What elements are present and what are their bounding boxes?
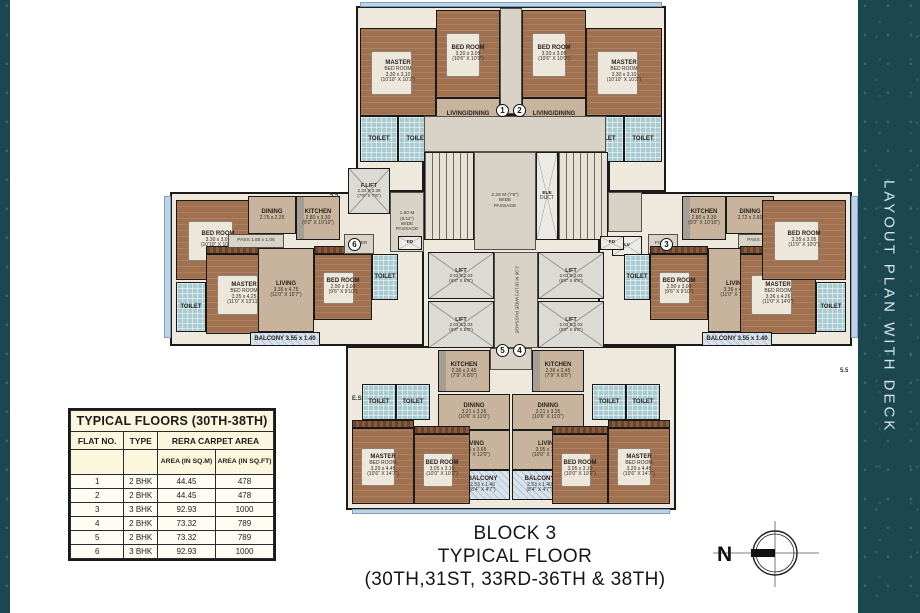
room-label: (10'6" X 14'7")	[367, 472, 399, 478]
room-deck-top	[360, 2, 662, 7]
layout-plan-page: LAYOUT PLAN WITH DECK BED ROOM3.20 x 3.0…	[0, 0, 920, 613]
room-lift-1: LIFT2.03 X 2.03(6'8" X 6'8")	[428, 252, 494, 299]
table-cell: 478	[216, 489, 274, 503]
table-cell: 2 BHK	[124, 489, 158, 503]
plan-note: 5.5	[330, 193, 338, 199]
room-stair-left	[424, 152, 474, 240]
flat-number-marker-2: 2	[513, 104, 526, 117]
room-label: (10'6" X 14'7")	[623, 472, 655, 478]
flat-number-marker-5: 5	[496, 344, 509, 357]
room-label: (10'10" X 10'2")	[381, 78, 415, 84]
left-border-strip	[0, 0, 10, 613]
room-f3-wardrobe-2	[650, 246, 708, 254]
table-cell: 3	[71, 503, 124, 517]
room-label: TOILET	[368, 399, 389, 406]
table-cell: 2 BHK	[124, 517, 158, 531]
room-label: BALCONY 3.55 x 1.40	[254, 336, 315, 343]
room-label: (10'6" X 10'0")	[452, 57, 484, 63]
room-label: PASS 1.65 x 1.05	[237, 238, 275, 243]
room-label: (10'0" X 10'2")	[426, 472, 458, 478]
room-f6-kitchen: KITCHEN2.80 x 3.30(9'2" X 10'10")	[296, 196, 340, 240]
room-f6-fd: FD	[398, 236, 422, 250]
block-title: BLOCK 3 TYPICAL FLOOR (30TH,31ST, 33RD-3…	[330, 522, 700, 591]
room-label: (11'0" X 13'11")	[227, 300, 261, 306]
room-f4-toilet-1: TOILET	[626, 384, 660, 420]
table-row: 33 BHK92.931000	[71, 503, 274, 517]
room-label: LV	[624, 243, 630, 248]
room-label: (6'8" X 6'8")	[559, 328, 582, 333]
north-compass: N	[705, 515, 825, 600]
room-label: (11'0" X 10'0")	[788, 243, 819, 249]
room-label: PASSAGE	[494, 204, 517, 209]
plan-note: E.S	[352, 396, 362, 402]
room-label: 2.08 M (6'10") WIDE PASSAGE	[513, 266, 518, 334]
sidebar-vertical-title: LAYOUT PLAN WITH DECK	[881, 180, 898, 433]
table-cell: 1000	[216, 503, 274, 517]
room-label: FD	[609, 240, 615, 245]
table-cell: 6	[71, 545, 124, 559]
room-f4-dining: DINING3.21 x 3.35(10'6" X 11'0")	[512, 394, 584, 430]
table-cell: 73.32	[158, 517, 216, 531]
table-cell: 44.45	[158, 489, 216, 503]
room-f1-toilet-1: TOILET	[360, 116, 398, 162]
room-f3-bedroom-1: BED ROOM3.35 x 3.05(11'0" X 10'0")	[762, 200, 846, 280]
room-f6-dining: DINING2.75 x 2.25	[248, 196, 296, 234]
room-f3-bedroom-2: BED ROOM2.90 x 3.00(9'6" X 9'10")	[650, 254, 708, 320]
room-f6-bedroom-2: BED ROOM2.90 x 3.00(9'6" X 9'10")	[314, 254, 372, 320]
table-cell: 5	[71, 531, 124, 545]
room-f5-toilet-2: TOILET	[396, 384, 430, 420]
room-f4-master-bedroom: MASTERBED ROOM3.20 x 4.45(10'6" X 14'7")	[608, 428, 670, 504]
table-cell: 478	[216, 475, 274, 489]
room-f5-dining: DINING3.21 x 3.35(10'6" X 11'0")	[438, 394, 510, 430]
room-label: (7'8" X 7'8")	[357, 194, 380, 199]
block-title-line2: TYPICAL FLOOR	[330, 545, 700, 568]
room-label: PASSAGE	[396, 227, 419, 232]
room-stair-right	[558, 152, 608, 240]
room-label: TOILET	[374, 274, 395, 281]
room-label: DUCT	[540, 196, 554, 202]
table-cell: 1	[71, 475, 124, 489]
room-label: TOILET	[626, 274, 647, 281]
table-cell: 1000	[216, 545, 274, 559]
room-label: 2.72 x 2.60	[738, 216, 763, 222]
col-flat-no: FLAT NO.	[71, 432, 124, 450]
room-core-passage: 2.28 M (7'6")WIDEPASSAGE	[474, 152, 536, 250]
room-label: (9'2" X 10'10")	[688, 221, 720, 227]
room-label: TOILET	[632, 136, 653, 143]
block-title-line1: BLOCK 3	[330, 522, 700, 545]
compass-north-bar	[751, 549, 775, 557]
room-ele-duct: ELEDUCT	[536, 152, 558, 240]
room-f3-kitchen: KITCHEN2.80 x 3.30(9'2" X 10'10")	[682, 196, 726, 240]
room-f5-master-bedroom: MASTERBED ROOM3.20 x 4.45(10'6" X 14'7")	[352, 428, 414, 504]
room-f5-toilet-1: TOILET	[362, 384, 396, 420]
typical-floors-table: TYPICAL FLOORS (30TH-38TH)FLAT NO.TYPERE…	[68, 408, 276, 561]
room-f1-bedroom: BED ROOM3.20 x 3.05(10'6" X 10'0")	[436, 10, 500, 98]
room-f6-toilet-2: TOILET	[372, 254, 398, 300]
room-label: (11'0" X 15'7")	[270, 293, 301, 299]
room-f2-toilet-2: TOILET	[624, 116, 662, 162]
room-f4-bedroom: BED ROOM3.05 x 3.10(10'0" X 10'2")	[552, 434, 608, 504]
table-cell: 3 BHK	[124, 503, 158, 517]
room-label: (11'0" X 14'0")	[762, 300, 793, 306]
room-f5-kitchen: KITCHEN2.36 x 2.45(7'9" X 8'0")	[438, 350, 490, 392]
room-lift-4: LIFT2.03 X 2.03(6'8" X 6'8")	[538, 301, 604, 348]
table-row: 12 BHK44.45478	[71, 475, 274, 489]
room-f3-balcony: BALCONY 3.55 x 1.40	[702, 332, 772, 346]
room-label: TOILET	[820, 304, 841, 311]
table-cell: 2	[71, 489, 124, 503]
room-f3-toilet-1: TOILET	[816, 282, 846, 332]
table-cell: 73.32	[158, 531, 216, 545]
sub-blank-1	[71, 450, 124, 475]
room-f4-wardrobe-1	[608, 420, 670, 428]
table-cell: 44.45	[158, 475, 216, 489]
sub-area-sqm: AREA (IN SQ.M)	[158, 450, 216, 475]
room-label: (8'4" X 4'7")	[526, 488, 552, 494]
room-f6-balcony: BALCONY 3.55 x 1.40	[250, 332, 320, 346]
room-f4-toilet-2: TOILET	[592, 384, 626, 420]
col-type: TYPE	[124, 432, 158, 450]
table-cell: 4	[71, 517, 124, 531]
room-label: (10'6" X 10'0")	[538, 57, 570, 63]
table-row: 42 BHK73.32789	[71, 517, 274, 531]
room-lift-2: LIFT2.03 X 2.03(6'8" X 6'8")	[428, 301, 494, 348]
room-label: (6'8" X 6'8")	[449, 328, 472, 333]
room-label: TOILET	[180, 304, 201, 311]
room-deck-right	[851, 196, 858, 338]
room-label: (6'8" X 6'8")	[559, 279, 582, 284]
room-lift-3: LIFT2.03 X 2.03(6'8" X 6'8")	[538, 252, 604, 299]
table-row: 52 BHK73.32789	[71, 531, 274, 545]
room-label: TOILET	[598, 399, 619, 406]
room-f2-bedroom: BED ROOM3.20 x 3.05(10'6" X 10'0")	[522, 10, 586, 98]
table-cell: 789	[216, 531, 274, 545]
room-deck-bottom	[352, 509, 670, 514]
room-f5-wardrobe-1	[352, 420, 414, 428]
flat-number-marker-4: 4	[513, 344, 526, 357]
room-label: 2.75 x 2.25	[260, 216, 285, 222]
room-lift-lobby: 2.08 M (6'10") WIDE PASSAGE	[494, 252, 538, 348]
room-hall-right	[608, 192, 642, 232]
room-label: (8'4" X 4'7")	[469, 488, 495, 494]
sub-blank-2	[124, 450, 158, 475]
room-label: TOILET	[368, 136, 389, 143]
table-cell: 2 BHK	[124, 531, 158, 545]
room-f4-kitchen: KITCHEN2.36 x 2.45(7'9" X 8'0")	[532, 350, 584, 392]
table-row: 22 BHK44.45478	[71, 489, 274, 503]
flat-number-marker-3: 3	[660, 238, 673, 251]
room-f2-master-bedroom: MASTERBED ROOM3.30 x 3.10(10'10" X 10'2"…	[586, 28, 662, 116]
room-label: (9'6" X 9'10")	[665, 290, 694, 296]
room-label: (9'6" X 9'10")	[329, 290, 358, 296]
room-top-corridor	[500, 8, 522, 114]
table-cell: 92.93	[158, 545, 216, 559]
room-label: (7'9" X 8'0")	[451, 374, 477, 380]
room-label: TOILET	[402, 399, 423, 406]
room-label: (7'9" X 8'0")	[545, 374, 571, 380]
room-f5-bedroom: BED ROOM3.05 x 3.10(10'0" X 10'2")	[414, 434, 470, 504]
room-f4-wardrobe-2	[552, 426, 608, 434]
table-cell: 2 BHK	[124, 475, 158, 489]
flat-area-table: TYPICAL FLOORS (30TH-38TH)FLAT NO.TYPERE…	[70, 410, 274, 559]
sub-area-sqft: AREA (IN SQ.FT)	[216, 450, 274, 475]
room-label: BALCONY 3.55 x 1.40	[706, 336, 767, 343]
room-f6-pass: PASS 1.65 x 1.05	[228, 234, 284, 248]
compass-n-label: N	[717, 543, 732, 566]
table-cell: 3 BHK	[124, 545, 158, 559]
room-f3-toilet-2: TOILET	[624, 254, 650, 300]
room-f1-master-bedroom: MASTERBED ROOM3.30 x 3.10(10'10" X 10'2"…	[360, 28, 436, 116]
room-label: (9'2" X 10'10")	[302, 221, 334, 227]
room-label: (6'8" X 6'8")	[449, 279, 472, 284]
col-rera-carpet-area: RERA CARPET AREA	[158, 432, 274, 450]
plan-note: 5.5	[840, 368, 848, 374]
table-cell: 92.93	[158, 503, 216, 517]
room-label: (10'0" X 10'2")	[564, 472, 596, 478]
room-label: (10'6" X 11'0")	[532, 415, 563, 421]
room-f5-wardrobe-2	[414, 426, 470, 434]
room-fire-lift: F.LIFT2.34 X 2.39(7'8" X 7'8")	[348, 168, 390, 214]
table-row: 63 BHK92.931000	[71, 545, 274, 559]
room-label: (10'10" X 10'2")	[607, 78, 641, 84]
room-core-hall-top	[424, 116, 606, 152]
room-label: TOILET	[632, 399, 653, 406]
room-label: FD	[407, 240, 413, 245]
right-sidebar: LAYOUT PLAN WITH DECK	[858, 0, 920, 613]
flat-number-marker-1: 1	[496, 104, 509, 117]
table-title: TYPICAL FLOORS (30TH-38TH)	[71, 411, 274, 432]
table-cell: 789	[216, 517, 274, 531]
flat-number-marker-6: 6	[348, 238, 361, 251]
room-f3-fd: FD	[600, 236, 624, 250]
room-f6-toilet-1: TOILET	[176, 282, 206, 332]
room-deck-left	[164, 196, 171, 338]
room-f6-living: LIVING3.36 x 4.75(11'0" X 15'7")	[258, 248, 314, 332]
room-label: (10'6" X 11'0")	[458, 415, 489, 421]
block-title-line3: (30TH,31ST, 33RD-36TH & 38TH)	[330, 568, 700, 591]
